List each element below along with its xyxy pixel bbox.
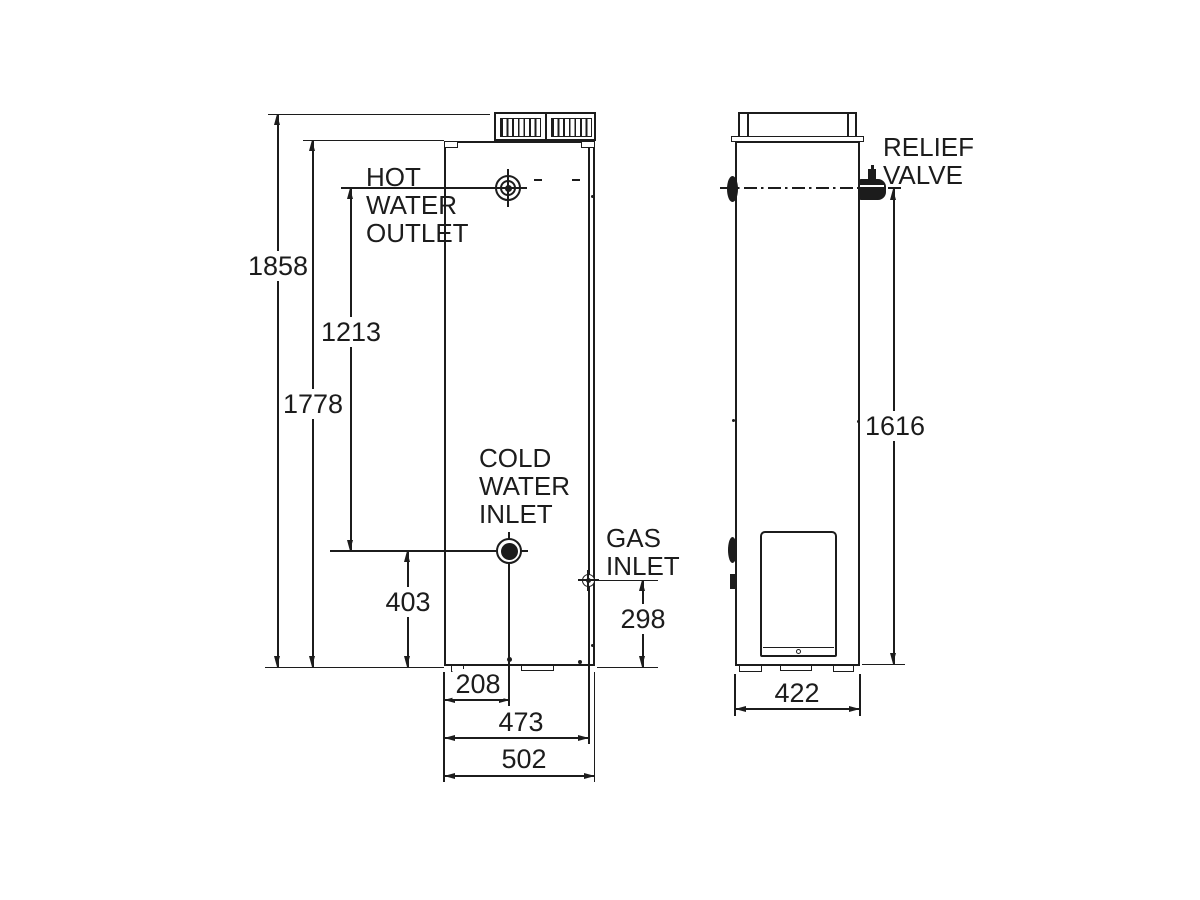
dim-line-gas-inlet-offset bbox=[444, 737, 589, 738]
side-foot-center bbox=[780, 665, 812, 671]
dim-arrow-outlet-to-inlet-bottom bbox=[347, 540, 353, 551]
ext-line-depth-right bbox=[594, 672, 595, 782]
flue-cowl-slats-right bbox=[551, 118, 592, 137]
side-foot-left bbox=[739, 665, 762, 672]
dim-arrow-relief-valve-height-bottom bbox=[890, 653, 896, 664]
access-panel bbox=[760, 531, 837, 657]
dim-arrow-overall-width-left bbox=[735, 706, 746, 712]
ext-line-depth-left bbox=[443, 672, 444, 782]
dim-value-overall-width: 422 bbox=[771, 678, 822, 708]
dim-arrow-gas-inlet-height-top bbox=[639, 580, 645, 591]
dim-arrow-jacket-height-top bbox=[309, 140, 315, 151]
access-panel-bottom-line bbox=[763, 647, 834, 648]
hot-water-outlet-label-line3: OUTLET bbox=[366, 219, 469, 247]
gas-inlet-side-stub bbox=[730, 574, 737, 589]
dim-arrow-overall-height-bottom bbox=[274, 656, 280, 667]
front-view-jacket-seam-line bbox=[588, 141, 590, 744]
side-edge-dot bbox=[857, 420, 860, 423]
seam-rivet-dot-bottom bbox=[591, 644, 594, 647]
cold-water-inlet-label-line2: WATER bbox=[479, 472, 570, 500]
dim-arrow-overall-depth-left bbox=[444, 773, 455, 779]
dim-arrow-gas-inlet-offset-right bbox=[578, 735, 589, 741]
relief-valve-label-line1: RELIEF bbox=[883, 133, 974, 161]
side-cap-flange bbox=[731, 136, 864, 142]
dim-arrow-overall-depth-right bbox=[584, 773, 595, 779]
dim-arrow-cold-inlet-height-bottom bbox=[404, 656, 410, 667]
top-fitting-dash-2 bbox=[572, 179, 580, 181]
ext-line-cold-inlet bbox=[330, 550, 492, 551]
dim-value-cold-inlet-height: 403 bbox=[382, 587, 433, 617]
dim-arrow-overall-height-top bbox=[274, 114, 280, 125]
relief-valve-label-line2: VALVE bbox=[883, 161, 974, 189]
cold-inlet-pipe-dot bbox=[507, 657, 512, 662]
cold-water-inlet-label-line3: INLET bbox=[479, 500, 570, 528]
dim-line-overall-height bbox=[277, 114, 278, 667]
dim-value-relief-valve-height: 1616 bbox=[862, 411, 928, 441]
dimension-drawing-canvas: 1858 1778 1213 403 298 208 473 502 HOT W… bbox=[0, 0, 1200, 900]
jacket-top-tab-right bbox=[581, 141, 595, 148]
dim-value-gas-inlet-height: 298 bbox=[617, 604, 668, 634]
hot-water-outlet-label-line1: HOT bbox=[366, 163, 469, 191]
gas-inlet-label: GAS INLET bbox=[606, 524, 680, 580]
ext-line-relief-valve-bottom bbox=[862, 664, 905, 665]
side-foot-right bbox=[833, 665, 854, 672]
ext-line-baseline-right bbox=[597, 667, 658, 668]
relief-valve-body-line bbox=[860, 185, 884, 187]
dim-arrow-jacket-height-bottom bbox=[309, 656, 315, 667]
seam-rivet-dot-top bbox=[591, 195, 594, 198]
dim-arrow-overall-width-right bbox=[849, 706, 860, 712]
hot-water-outlet-label: HOT WATER OUTLET bbox=[366, 163, 469, 247]
dim-arrow-gas-inlet-height-bottom bbox=[639, 656, 645, 667]
dim-value-overall-height: 1858 bbox=[245, 251, 311, 281]
ext-line-jacket-height-top bbox=[303, 140, 444, 141]
flue-cowl-divider bbox=[545, 114, 547, 139]
front-foot-mark-right bbox=[578, 660, 582, 664]
gas-inlet-label-line2: INLET bbox=[606, 552, 680, 580]
relief-valve-stem-tip bbox=[871, 165, 874, 170]
cold-water-inlet-label: COLD WATER INLET bbox=[479, 444, 570, 528]
hot-water-outlet-center bbox=[505, 185, 512, 192]
gas-inlet-label-line1: GAS bbox=[606, 524, 680, 552]
ext-line-overall-height-top bbox=[268, 114, 490, 115]
relief-valve-body bbox=[858, 179, 886, 200]
dim-value-overall-depth: 502 bbox=[498, 744, 549, 774]
dim-arrow-cold-inlet-height-top bbox=[404, 551, 410, 562]
access-panel-screw bbox=[796, 649, 801, 654]
dim-arrow-gas-inlet-offset-left bbox=[444, 735, 455, 741]
flue-cowl-slats-left bbox=[500, 118, 541, 137]
cold-water-inlet-label-line1: COLD bbox=[479, 444, 570, 472]
dim-line-overall-width bbox=[735, 708, 860, 709]
dim-value-outlet-to-inlet: 1213 bbox=[318, 317, 384, 347]
dim-value-jacket-height: 1778 bbox=[280, 389, 346, 419]
hot-water-outlet-label-line2: WATER bbox=[366, 191, 469, 219]
side-seam-dot bbox=[732, 419, 735, 422]
ext-line-baseline-left bbox=[265, 667, 444, 668]
dim-value-gas-inlet-offset: 473 bbox=[495, 707, 546, 737]
dim-value-cold-inlet-offset: 208 bbox=[452, 669, 503, 699]
relief-valve-label: RELIEF VALVE bbox=[883, 133, 974, 189]
top-fitting-dash-1 bbox=[534, 179, 542, 181]
dim-line-overall-depth bbox=[444, 775, 595, 776]
dim-arrow-outlet-to-inlet-top bbox=[347, 188, 353, 199]
front-foot-center bbox=[521, 665, 554, 671]
dim-arrow-relief-valve-height-top bbox=[890, 189, 896, 200]
cold-water-inlet-center bbox=[501, 543, 518, 560]
gas-inlet-center bbox=[586, 578, 591, 583]
dim-line-outlet-to-inlet bbox=[350, 188, 351, 551]
hot-outlet-side-stub bbox=[727, 176, 738, 202]
jacket-top-tab-left bbox=[444, 141, 458, 148]
cold-inlet-pipe-centerline bbox=[508, 570, 509, 706]
cold-inlet-side-stub bbox=[728, 537, 737, 563]
